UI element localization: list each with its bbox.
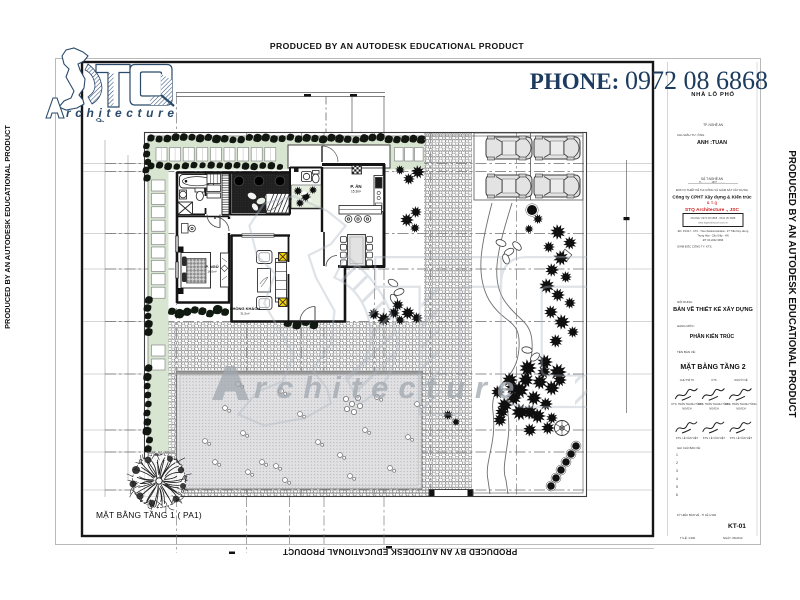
svg-text:STQ Architecture ., JSC: STQ Architecture ., JSC	[685, 207, 739, 213]
svg-text:ĐƠN VỊ THIẾT KẾ THI CÔNG VÀ GI: ĐƠN VỊ THIẾT KẾ THI CÔNG VÀ GIÁM SÁT XÂY…	[676, 187, 748, 192]
svg-text:NHÀ LÔ PHỐ: NHÀ LÔ PHỐ	[691, 90, 734, 98]
svg-text:31.5m²: 31.5m²	[240, 312, 249, 316]
svg-text:GIÁM ĐỐC CÔNG TY: KTS.: GIÁM ĐỐC CÔNG TY: KTS.	[677, 244, 712, 249]
svg-text:4: 4	[676, 477, 678, 481]
svg-text:PRODUCED BY AN AUTODESK EDUCAT: PRODUCED BY AN AUTODESK EDUCATIONAL PROD…	[270, 41, 525, 51]
svg-text:2: 2	[676, 461, 678, 465]
svg-text:Trung Hòa - Cầu Giấy - HN: Trung Hòa - Cầu Giấy - HN	[697, 234, 728, 238]
svg-text:1: 1	[676, 453, 678, 457]
svg-text:PHÒNG KHÁCH: PHÒNG KHÁCH	[230, 306, 260, 311]
svg-text:NỘI DUNG:: NỘI DUNG:	[677, 299, 693, 304]
svg-text:CHỦ ĐẦU TƯ: ÔNG: CHỦ ĐẦU TƯ: ÔNG	[677, 132, 705, 137]
svg-text:NGÁCH: NGÁCH	[682, 407, 691, 411]
svg-text:rchitecture: rchitecture	[254, 370, 524, 405]
svg-text:TL: .......... 186? ..........: TL: .......... 186? ..........	[699, 180, 725, 184]
svg-text:PRODUCED BY AN AUTODESK EDUCAT: PRODUCED BY AN AUTODESK EDUCATIONAL PROD…	[3, 125, 12, 329]
svg-text:ĐC: P.1617 - CT2 - Tòa nhà Eur: ĐC: P.1617 - CT2 - Tòa nhà Eurowindow - …	[678, 229, 749, 233]
svg-text:GHI CHÚ BẢN VẼ:: GHI CHÚ BẢN VẼ:	[677, 445, 701, 450]
svg-text:MẶT BẰNG TẦNG 1 ( PA1): MẶT BẰNG TẦNG 1 ( PA1)	[96, 510, 202, 520]
svg-text:KTS: KTS	[711, 378, 716, 382]
svg-text:16.0m²: 16.0m²	[207, 269, 216, 273]
svg-text:HẠNG MỜC:: HẠNG MỜC:	[677, 323, 695, 328]
svg-text:PRODUCED BY AN AUTODESK EDUCAT: PRODUCED BY AN AUTODESK EDUCATIONAL PROD…	[786, 150, 797, 417]
svg-text:www.stqarchitecture.com.vn: www.stqarchitecture.com.vn	[698, 222, 728, 225]
svg-text:TP. NGHỆ AN: TP. NGHỆ AN	[703, 122, 723, 127]
svg-text:P. ĂN: P. ĂN	[350, 184, 361, 189]
svg-text:ANH :TUAN: ANH :TUAN	[697, 140, 727, 146]
svg-text:KÝ HIỆU BẢN VẼ - TỈ LỆ 1/100: KÝ HIỆU BẢN VẼ - TỈ LỆ 1/100	[677, 512, 717, 517]
svg-text:3: 3	[676, 469, 678, 473]
svg-text:NGÁCH: NGÁCH	[709, 407, 718, 411]
svg-text:TÊN BẢN VẼ:: TÊN BẢN VẼ:	[677, 349, 696, 354]
svg-text:NGÁCH: NGÁCH	[736, 407, 745, 411]
svg-text:PHẦN KIẾN TRÚC: PHẦN KIẾN TRÚC	[690, 333, 735, 340]
svg-text:Công ty CPHT Xây dựng & Kiến t: Công ty CPHT Xây dựng & Kiến trúc	[672, 194, 752, 200]
svg-text:KT-01: KT-01	[728, 523, 746, 530]
svg-text:TỈ LỆ: 1/100: TỈ LỆ: 1/100	[680, 535, 696, 540]
svg-text:BẢN VẼ THIẾT KẾ XÂY DỰNG: BẢN VẼ THIẾT KẾ XÂY DỰNG	[673, 306, 753, 313]
svg-text:NGÀY: 06/2013: NGÀY: 06/2013	[723, 536, 743, 540]
svg-text:15.3m²: 15.3m²	[351, 190, 361, 194]
svg-text:rchitecture: rchitecture	[66, 106, 179, 120]
svg-text:S. T. Q: S. T. Q	[707, 201, 718, 205]
svg-text:P. NGỦ: P. NGỦ	[205, 264, 218, 269]
svg-text:6: 6	[676, 493, 678, 497]
svg-text:5: 5	[676, 485, 678, 489]
svg-text:PHONE: 0972 08 6868: PHONE: 0972 08 6868	[530, 66, 768, 95]
svg-text:PHONE: 0972 08 6868 - 0912 35: PHONE: 0972 08 6868 - 0912 35 6688	[691, 216, 736, 220]
svg-text:ĐT: 04.2242 6996: ĐT: 04.2242 6996	[703, 238, 724, 242]
